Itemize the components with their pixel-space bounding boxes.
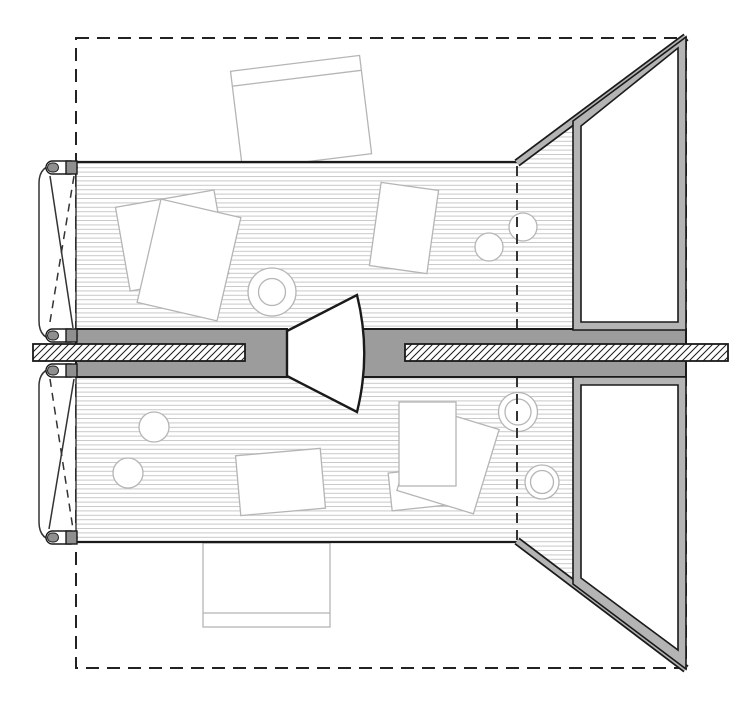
round-object [475,233,503,261]
chair-lower-seat [203,543,330,627]
chair-upper [231,55,372,169]
clamp-cap [48,533,59,542]
clamp-pad [66,364,77,377]
section-bar-right-hatch [405,344,728,361]
section-bar-left-hatch [33,344,245,361]
cup-inner [259,279,286,306]
clamp-cap [48,331,59,340]
chair-lower [203,543,330,627]
clamp-cap [48,366,59,375]
paper-sheet [236,448,326,515]
clamp-cap [48,163,59,172]
round-object [113,458,143,488]
chair-upper-seat [231,55,372,169]
clamp-pad [66,161,77,174]
clamp-pad [66,531,77,544]
paper-sheet [399,402,456,486]
cup-inner [531,471,554,494]
clamp-pad [66,329,77,342]
floor-plan-drawing [0,0,750,712]
plan-sheet [0,0,750,712]
round-object [509,213,537,241]
paper-sheet [369,182,438,273]
round-object [139,412,169,442]
